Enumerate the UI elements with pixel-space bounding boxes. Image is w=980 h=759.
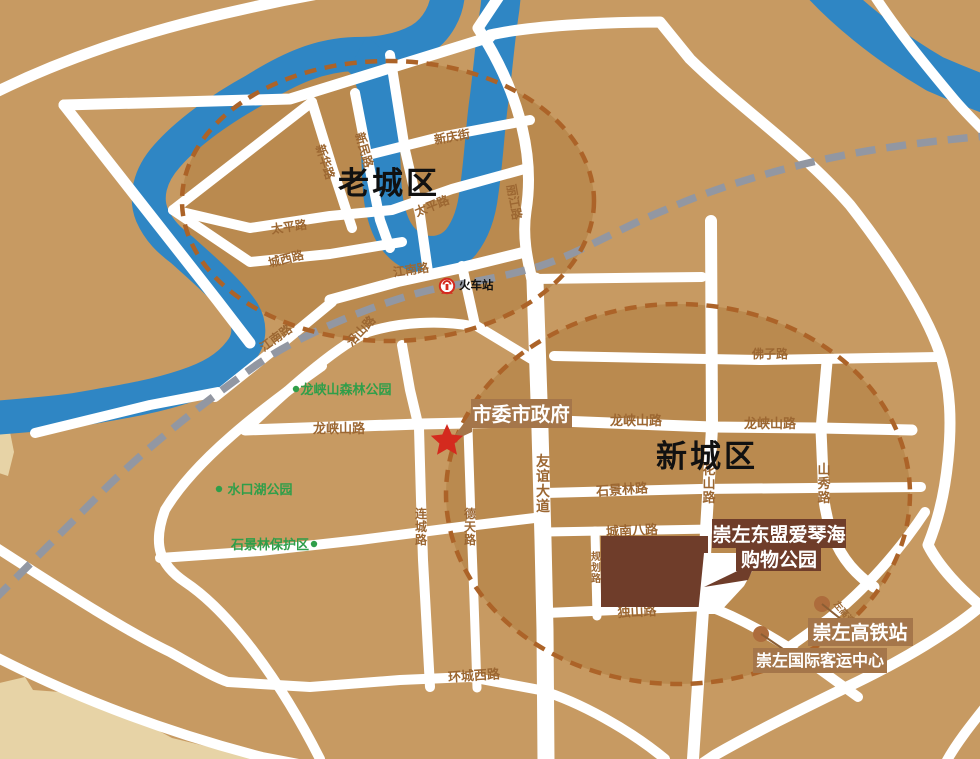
svg-text:石景林保护区: 石景林保护区 [230, 537, 309, 552]
svg-text:新城区: 新城区 [656, 439, 758, 474]
svg-text:崇左国际客运中心: 崇左国际客运中心 [756, 651, 884, 670]
svg-text:佛子路: 佛子路 [751, 346, 789, 361]
svg-text:老城区: 老城区 [338, 166, 440, 201]
svg-text:德天路: 德天路 [464, 506, 477, 547]
svg-text:崇左高铁站: 崇左高铁站 [812, 621, 907, 644]
svg-text:龙峡山路: 龙峡山路 [744, 416, 797, 431]
svg-text:龙峡山路: 龙峡山路 [610, 413, 663, 428]
svg-text:山秀路: 山秀路 [816, 462, 831, 505]
svg-text:连城路: 连城路 [415, 506, 428, 547]
svg-text:崇左东盟爱琴海: 崇左东盟爱琴海 [712, 523, 845, 546]
svg-text:火车站: 火车站 [459, 278, 494, 292]
svg-text:购物公园: 购物公园 [741, 548, 817, 571]
svg-text:友谊大道: 友谊大道 [536, 453, 550, 514]
svg-text:水口湖公园: 水口湖公园 [227, 482, 292, 497]
svg-text:市委市政府: 市委市政府 [472, 403, 570, 426]
svg-text:龙峡山森林公园: 龙峡山森林公园 [300, 382, 391, 397]
svg-text:龙峡山路: 龙峡山路 [313, 421, 366, 436]
svg-text:规划路: 规划路 [591, 550, 602, 585]
